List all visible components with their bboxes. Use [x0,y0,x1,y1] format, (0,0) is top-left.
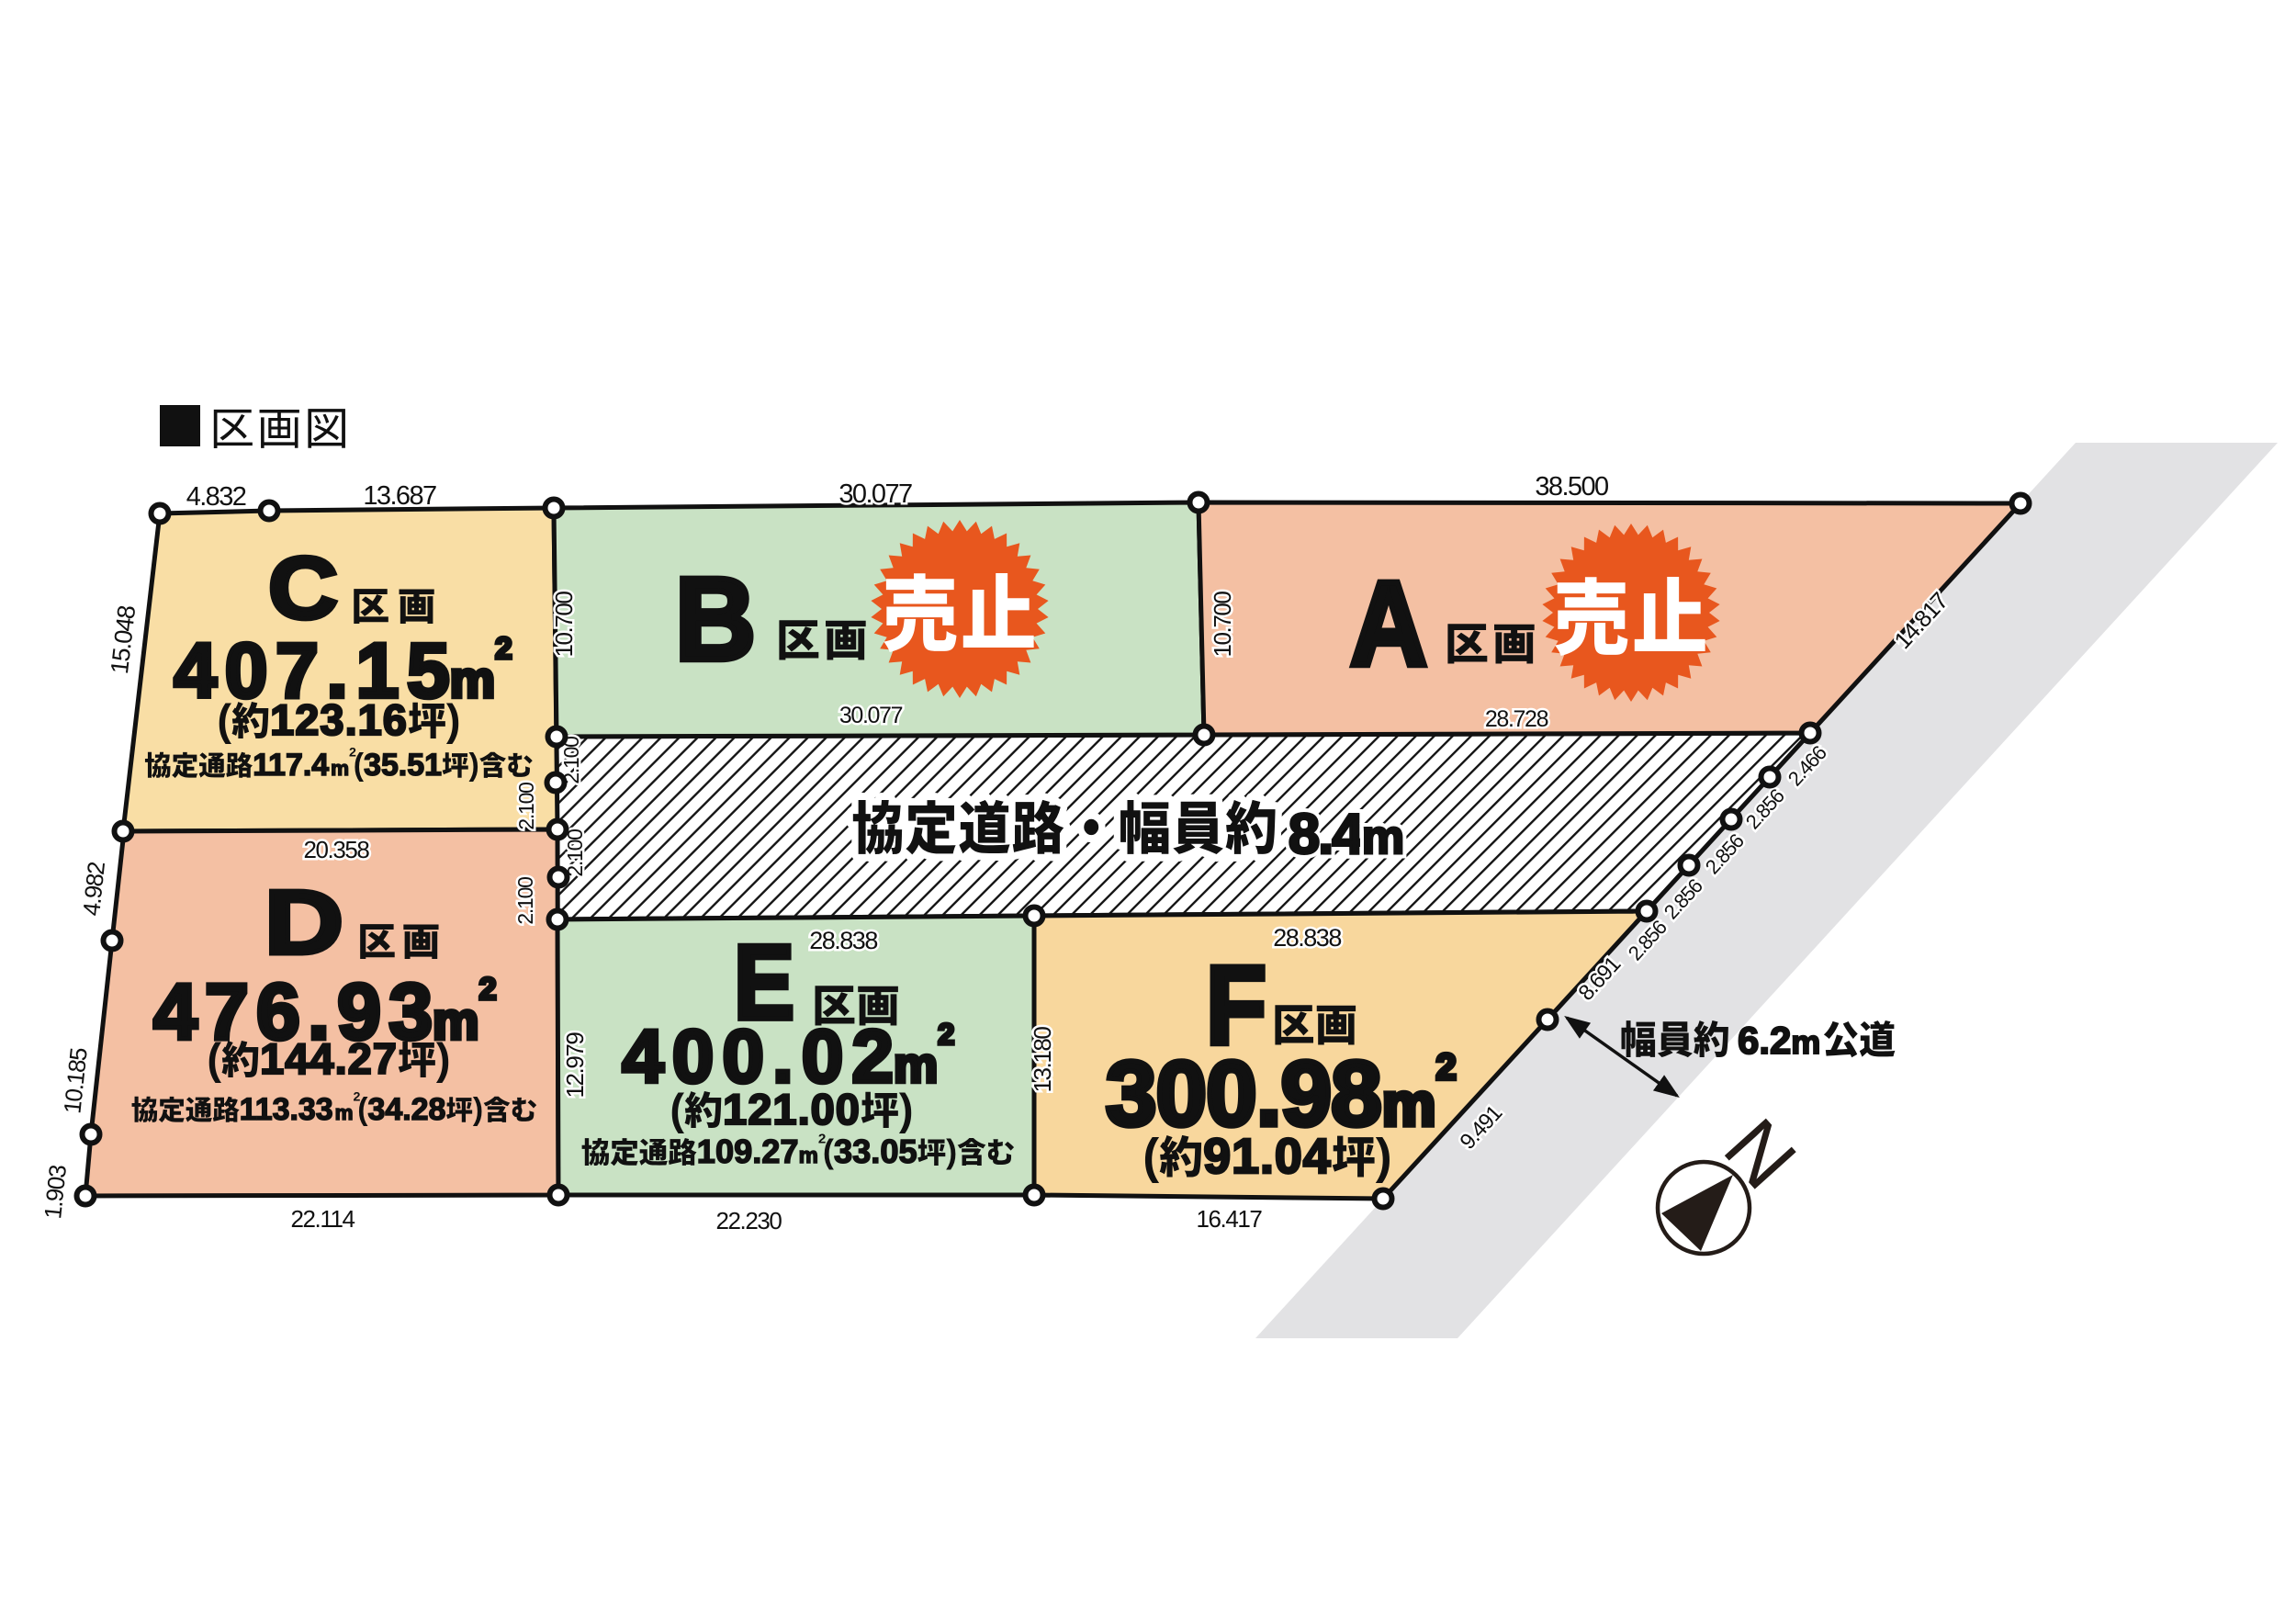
svg-text:38.500: 38.500 [1535,472,1608,502]
svg-text:(: ( [354,748,365,783]
svg-text:117.4: 117.4 [253,748,329,783]
svg-text:28.728: 28.728 [1485,706,1548,732]
svg-text:2.100: 2.100 [514,783,538,830]
svg-text:2: 2 [495,632,512,666]
svg-text:28.838: 28.838 [809,927,877,954]
svg-text:12.979: 12.979 [561,1032,589,1099]
svg-text:(: ( [357,1092,368,1127]
svg-text:): ) [436,1034,451,1083]
svg-text:15.048: 15.048 [106,604,141,675]
svg-text:123.16: 123.16 [270,695,408,744]
svg-text:121.00: 121.00 [723,1085,861,1133]
svg-text:): ) [446,695,461,744]
svg-text:m: m [1362,811,1404,864]
svg-text:(: ( [217,695,231,744]
svg-text:D: D [264,872,343,973]
svg-text:m: m [799,1144,818,1168]
svg-text:m: m [1382,1070,1436,1138]
svg-text:A: A [1350,556,1427,691]
svg-text:16.417: 16.417 [1197,1205,1263,1233]
svg-text:): ) [473,1092,483,1127]
svg-text:C: C [268,539,338,637]
svg-text:113.33: 113.33 [240,1092,333,1127]
svg-text:30.077: 30.077 [839,703,903,728]
svg-text:4.982: 4.982 [77,861,110,918]
svg-text:B: B [675,554,756,685]
svg-text:1.903: 1.903 [39,1164,72,1221]
svg-text:91.04: 91.04 [1203,1129,1332,1184]
svg-text:28.838: 28.838 [1273,924,1341,952]
svg-text:22.114: 22.114 [291,1205,355,1233]
svg-text:13.687: 13.687 [363,481,436,511]
svg-text:2: 2 [938,1017,954,1051]
svg-text:10.700: 10.700 [550,592,578,658]
svg-text:2: 2 [1436,1047,1457,1088]
svg-text:20.358: 20.358 [304,836,370,863]
svg-text:2: 2 [479,972,497,1007]
svg-text:13.180: 13.180 [1029,1027,1056,1093]
svg-text:2.100: 2.100 [513,877,537,925]
svg-text:): ) [1376,1129,1392,1184]
svg-text:6.2: 6.2 [1738,1019,1791,1062]
svg-text:): ) [899,1085,914,1133]
svg-text:109.27: 109.27 [697,1133,799,1170]
svg-text:33.05: 33.05 [834,1133,917,1170]
svg-text:): ) [469,748,479,783]
svg-text:m: m [1791,1023,1820,1061]
svg-text:34.28: 34.28 [368,1092,446,1127]
svg-text:8.4: 8.4 [1289,803,1365,866]
svg-text:(: ( [670,1085,684,1133]
svg-text:4.832: 4.832 [186,482,246,512]
svg-text:m: m [331,757,349,780]
svg-text:10.185: 10.185 [58,1046,92,1115]
svg-text:(: ( [207,1034,221,1083]
svg-text:22.230: 22.230 [716,1207,782,1234]
svg-text:): ) [946,1133,957,1170]
svg-text:35.51: 35.51 [364,748,442,783]
svg-text:(: ( [823,1133,835,1170]
svg-text:30.077: 30.077 [838,479,912,509]
svg-text:m: m [335,1101,354,1124]
svg-text:(: ( [1142,1129,1159,1184]
svg-text:144.27: 144.27 [260,1034,398,1083]
svg-text:10.700: 10.700 [1209,592,1236,658]
